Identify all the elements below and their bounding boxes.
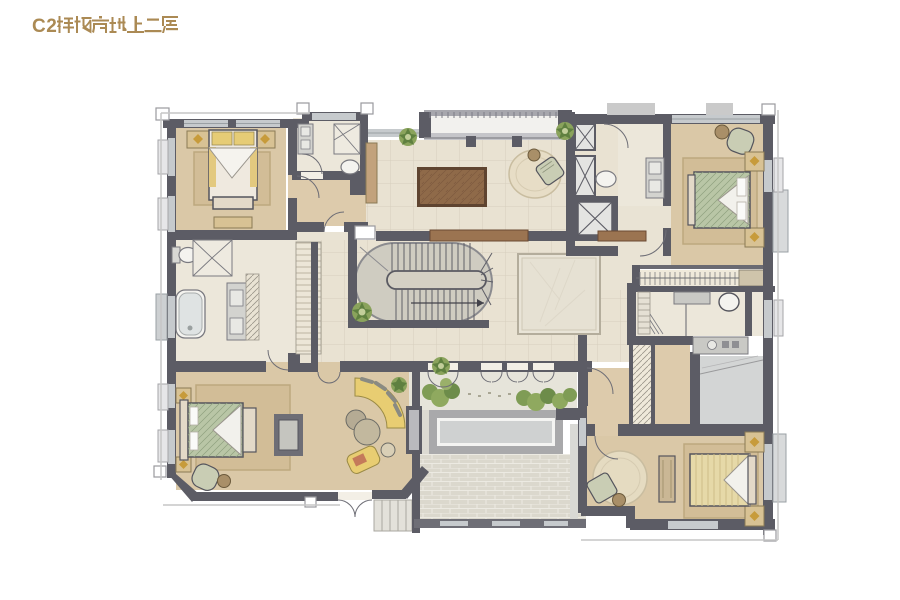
svg-text:C2: C2 — [32, 16, 57, 37]
